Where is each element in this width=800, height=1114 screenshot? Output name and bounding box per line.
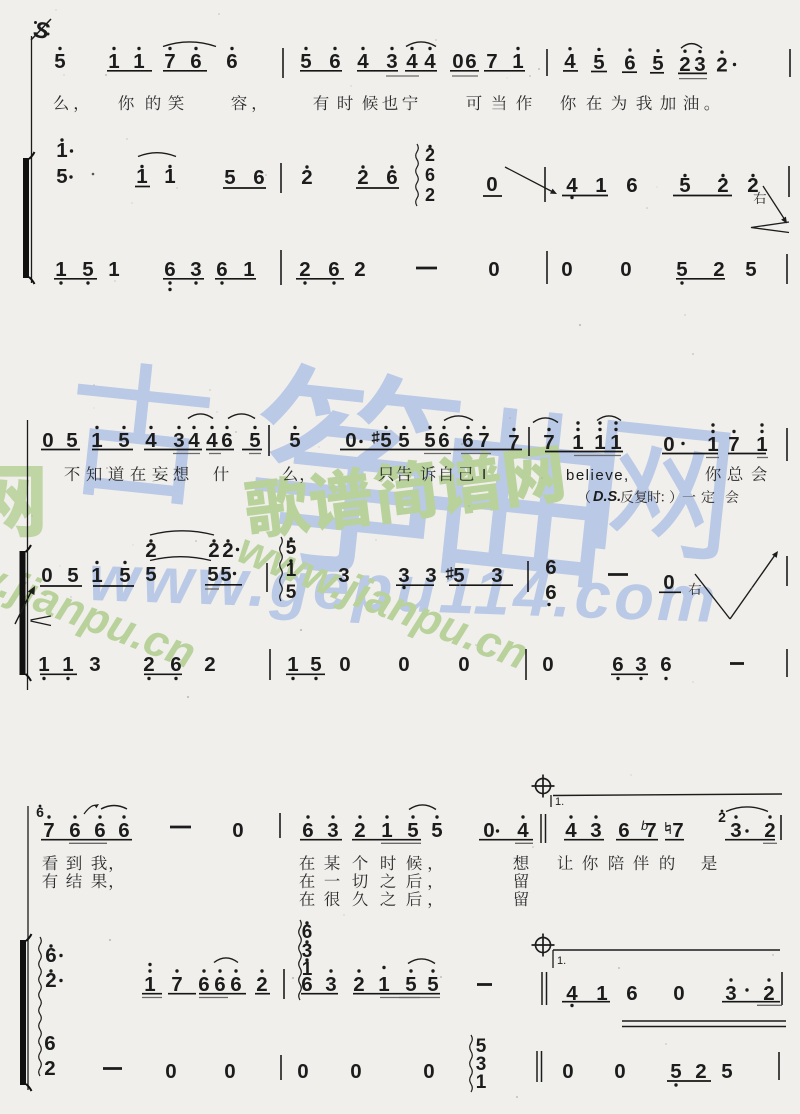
- svg-text:6: 6: [118, 819, 129, 842]
- svg-text:6: 6: [221, 429, 232, 452]
- svg-text:D.S.: D.S.: [593, 489, 621, 505]
- svg-text:3: 3: [325, 973, 336, 996]
- svg-text:4: 4: [424, 50, 436, 73]
- svg-text:7: 7: [171, 973, 182, 996]
- svg-text:6: 6: [44, 1032, 55, 1055]
- svg-text:1: 1: [476, 1072, 487, 1093]
- svg-text:6: 6: [438, 429, 449, 452]
- svg-text:6: 6: [465, 50, 476, 73]
- svg-text:1: 1: [595, 174, 606, 197]
- svg-text:0: 0: [339, 653, 350, 676]
- svg-text:6: 6: [216, 258, 227, 281]
- svg-text:0: 0: [614, 1060, 625, 1083]
- svg-text:1: 1: [56, 139, 67, 162]
- svg-text:0: 0: [663, 433, 674, 456]
- svg-text:5: 5: [66, 429, 77, 452]
- svg-text:3: 3: [398, 564, 409, 587]
- svg-text:0: 0: [483, 819, 494, 842]
- svg-text:5: 5: [224, 166, 235, 189]
- svg-text:6: 6: [302, 819, 313, 842]
- svg-text:1: 1: [287, 653, 298, 676]
- svg-text:5: 5: [745, 258, 756, 281]
- svg-text:0: 0: [620, 258, 631, 281]
- svg-text:5: 5: [56, 165, 67, 188]
- svg-text:1: 1: [707, 433, 718, 456]
- svg-text:1: 1: [286, 560, 297, 581]
- svg-text:6: 6: [190, 50, 201, 73]
- svg-text:3: 3: [730, 819, 741, 842]
- svg-text:6: 6: [624, 52, 635, 75]
- svg-text:3: 3: [386, 50, 397, 73]
- svg-text:7: 7: [728, 433, 739, 456]
- svg-text:4: 4: [406, 50, 418, 73]
- svg-text:2: 2: [695, 1060, 706, 1083]
- svg-text:6: 6: [214, 973, 225, 996]
- svg-text:6: 6: [198, 973, 209, 996]
- svg-text:1: 1: [144, 973, 155, 996]
- svg-text:5: 5: [380, 429, 391, 452]
- svg-text:3: 3: [590, 819, 601, 842]
- svg-text:5: 5: [679, 174, 690, 197]
- svg-text:believe,: believe,: [566, 467, 630, 484]
- svg-text:1.: 1.: [555, 796, 564, 808]
- svg-text:b: b: [641, 818, 648, 833]
- svg-text:5: 5: [424, 429, 435, 452]
- svg-text:5: 5: [670, 1060, 681, 1083]
- svg-text:2: 2: [357, 166, 368, 189]
- svg-text:5: 5: [398, 429, 409, 452]
- svg-text:0: 0: [562, 1060, 573, 1083]
- svg-text:5: 5: [405, 973, 416, 996]
- svg-text:4: 4: [564, 50, 576, 73]
- svg-text:0: 0: [542, 653, 553, 676]
- svg-text:5: 5: [207, 563, 218, 586]
- svg-text:5: 5: [721, 1060, 732, 1083]
- svg-text:1: 1: [594, 431, 605, 454]
- svg-text:0: 0: [663, 571, 674, 594]
- svg-text:7: 7: [486, 50, 497, 73]
- svg-text:0: 0: [297, 1060, 308, 1083]
- svg-text:1: 1: [38, 653, 49, 676]
- svg-text:5: 5: [652, 52, 663, 75]
- svg-text:1: 1: [62, 653, 73, 676]
- svg-text:5: 5: [286, 582, 297, 603]
- svg-text:6: 6: [545, 581, 556, 604]
- svg-text:2: 2: [143, 653, 154, 676]
- svg-text:0: 0: [350, 1060, 361, 1083]
- svg-text:6: 6: [329, 50, 340, 73]
- svg-text:4: 4: [188, 429, 200, 452]
- svg-text:0: 0: [398, 653, 409, 676]
- svg-text:5: 5: [593, 51, 604, 74]
- svg-text:4: 4: [517, 819, 529, 842]
- svg-text:4: 4: [565, 819, 577, 842]
- svg-text:1: 1: [136, 165, 147, 188]
- svg-text:7: 7: [543, 431, 554, 454]
- svg-text:0: 0: [41, 564, 52, 587]
- svg-text:2: 2: [747, 174, 758, 197]
- svg-text:1: 1: [108, 258, 119, 281]
- svg-text:1: 1: [512, 50, 523, 73]
- svg-text:I: I: [482, 466, 486, 483]
- svg-text:2: 2: [679, 53, 690, 76]
- svg-text:5: 5: [119, 564, 130, 587]
- svg-text:1.: 1.: [557, 955, 566, 967]
- svg-text:6: 6: [302, 922, 313, 943]
- svg-text:3: 3: [173, 429, 184, 452]
- svg-text:3: 3: [190, 258, 201, 281]
- svg-text:6: 6: [164, 258, 175, 281]
- svg-text:7: 7: [672, 819, 683, 842]
- svg-text:6: 6: [612, 653, 623, 676]
- svg-text:5: 5: [145, 563, 156, 586]
- svg-text:6: 6: [301, 973, 312, 996]
- svg-text:2: 2: [256, 973, 267, 996]
- svg-text:6: 6: [170, 653, 181, 676]
- svg-text:6: 6: [253, 166, 264, 189]
- svg-text:1: 1: [164, 165, 175, 188]
- svg-text:3: 3: [338, 564, 349, 587]
- svg-text:6: 6: [386, 166, 397, 189]
- svg-text:4: 4: [357, 50, 369, 73]
- svg-text:6: 6: [462, 429, 473, 452]
- svg-text:6: 6: [69, 819, 80, 842]
- svg-text:1: 1: [381, 819, 392, 842]
- svg-text:7: 7: [164, 50, 175, 73]
- svg-text:4: 4: [566, 174, 578, 197]
- svg-text:1: 1: [572, 431, 583, 454]
- svg-text:5: 5: [220, 563, 231, 586]
- svg-text:6: 6: [626, 174, 637, 197]
- svg-text:5: 5: [427, 973, 438, 996]
- svg-text:2: 2: [44, 1057, 55, 1080]
- svg-text:6: 6: [230, 973, 241, 996]
- svg-text:3: 3: [491, 564, 502, 587]
- svg-text:5: 5: [453, 564, 464, 587]
- svg-text:5: 5: [431, 819, 442, 842]
- svg-text:0: 0: [423, 1060, 434, 1083]
- svg-text:1: 1: [610, 431, 621, 454]
- svg-text:2: 2: [354, 258, 365, 281]
- svg-text:3: 3: [425, 564, 436, 587]
- svg-text:1: 1: [378, 973, 389, 996]
- svg-text:0: 0: [232, 819, 243, 842]
- svg-text:2: 2: [717, 174, 728, 197]
- svg-text:5: 5: [286, 538, 297, 559]
- svg-text:1: 1: [91, 429, 102, 452]
- svg-text:5: 5: [118, 429, 129, 452]
- svg-text:6: 6: [626, 982, 637, 1005]
- svg-text:7: 7: [508, 431, 519, 454]
- svg-text:1: 1: [55, 258, 66, 281]
- svg-text:0: 0: [673, 982, 684, 1005]
- svg-text:0: 0: [561, 258, 572, 281]
- svg-text:5: 5: [407, 819, 418, 842]
- svg-text:6: 6: [618, 819, 629, 842]
- svg-text:0: 0: [224, 1060, 235, 1083]
- svg-text:2: 2: [425, 185, 435, 205]
- svg-text:6: 6: [545, 556, 556, 579]
- svg-text:6: 6: [425, 165, 435, 185]
- svg-text:6: 6: [328, 258, 339, 281]
- svg-text:5: 5: [289, 429, 300, 452]
- svg-text:0: 0: [458, 653, 469, 676]
- svg-text:1: 1: [91, 564, 102, 587]
- svg-text:1: 1: [133, 50, 144, 73]
- svg-text:2: 2: [301, 166, 312, 189]
- svg-text:1: 1: [243, 258, 254, 281]
- svg-text:7: 7: [43, 819, 54, 842]
- svg-text:5: 5: [82, 258, 93, 281]
- svg-text:6: 6: [94, 819, 105, 842]
- svg-text:2: 2: [764, 819, 775, 842]
- svg-text:2: 2: [353, 973, 364, 996]
- svg-text:5: 5: [310, 653, 321, 676]
- svg-text:2: 2: [713, 258, 724, 281]
- svg-text:2: 2: [204, 653, 215, 676]
- svg-text:5: 5: [249, 429, 260, 452]
- svg-text:3: 3: [635, 653, 646, 676]
- svg-text:0: 0: [486, 173, 497, 196]
- svg-text:1: 1: [756, 433, 767, 456]
- svg-text:0: 0: [42, 429, 53, 452]
- svg-text:5: 5: [676, 258, 687, 281]
- svg-text:1: 1: [108, 50, 119, 73]
- svg-text:4: 4: [206, 429, 218, 452]
- svg-text:2: 2: [716, 54, 727, 77]
- svg-text:3: 3: [327, 819, 338, 842]
- svg-text:7: 7: [478, 429, 489, 452]
- svg-text:0: 0: [452, 50, 463, 73]
- svg-text:2: 2: [354, 819, 365, 842]
- svg-text:0: 0: [165, 1060, 176, 1083]
- svg-text:5: 5: [67, 564, 78, 587]
- svg-text:6: 6: [226, 50, 237, 73]
- svg-text:2: 2: [299, 258, 310, 281]
- svg-text:0: 0: [345, 429, 356, 452]
- svg-text:0: 0: [488, 258, 499, 281]
- svg-text:6: 6: [660, 653, 671, 676]
- svg-text:5: 5: [300, 50, 311, 73]
- svg-text:3: 3: [89, 653, 100, 676]
- svg-text:5: 5: [54, 50, 65, 73]
- svg-text:4: 4: [145, 429, 157, 452]
